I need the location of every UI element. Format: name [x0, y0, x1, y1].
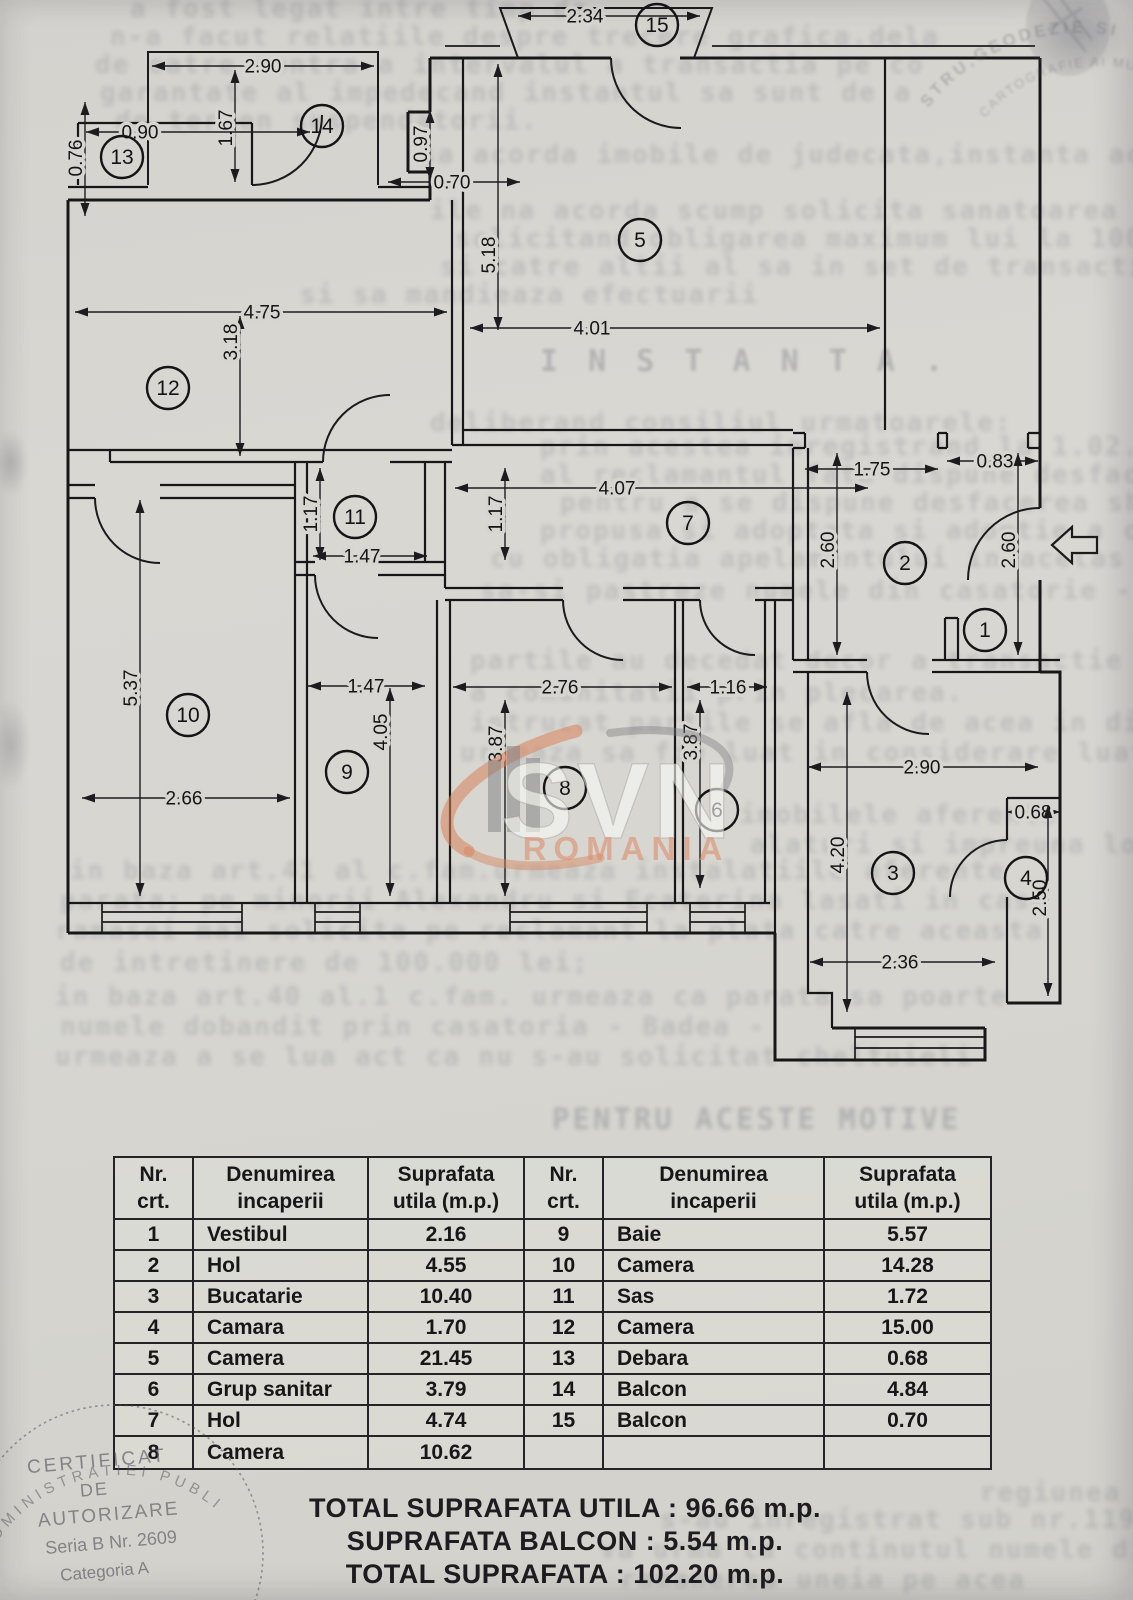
- table-cell-area: 4.55: [369, 1251, 525, 1282]
- table-header-area: Suprafata utila (m.p.): [825, 1158, 990, 1220]
- bleedthrough-text: n-a facut relatiile despre trecere grafi…: [110, 22, 940, 52]
- bleedthrough-text: partile au decedat decor a transactie in…: [470, 646, 1133, 676]
- bleedthrough-text: a comunitatii prin plecarea.: [470, 678, 964, 708]
- bleedthrough-text: parata; pe minorii Alexandru si Ecaterin…: [60, 886, 1049, 916]
- bleedthrough-text: I N S T A N T A .: [540, 344, 949, 379]
- table-header-nr: Nr. crt.: [525, 1158, 604, 1220]
- bleedthrough-text: si catre altii al sa in set de transacti…: [440, 252, 1133, 282]
- table-cell-room: Camera: [604, 1313, 825, 1344]
- bleedthrough-text: ile na acorda scump solicita sanatoarea …: [430, 196, 1133, 226]
- table-cell-room: Camera: [604, 1251, 825, 1282]
- table-cell-nr: 2: [115, 1251, 194, 1282]
- table-cell-room: Camera: [194, 1344, 369, 1375]
- bleedthrough-text: sa acorda imobile de judecata,instanta a…: [420, 140, 1133, 170]
- table-cell-area: 4.74: [369, 1406, 525, 1437]
- table-cell-nr: 13: [525, 1344, 604, 1375]
- total-suprafata: TOTAL SUPRAFATA : 102.20 m.p.: [115, 1558, 1015, 1591]
- bleedthrough-text: in baza art.40 al.1 c.fam. urmeaza ca pa…: [55, 982, 1008, 1012]
- bleedthrough-text: cu obligatia apelamentului in acelas - i…: [490, 544, 1133, 574]
- bleedthrough-text: numele dobandit prin casatoria - Badea -: [60, 1012, 766, 1042]
- bleedthrough-text: PENTRU ACESTE MOTIVE: [552, 1102, 961, 1136]
- bleedthrough-text: in baza art.41 al c.fam.urmeaza instalat…: [70, 856, 1006, 886]
- table-cell-area: 10.40: [369, 1282, 525, 1313]
- bleedthrough-text: urmeaza a se lua act ca nu s-au solicita…: [55, 1042, 973, 1072]
- table-cell-area: 4.84: [825, 1375, 990, 1406]
- table-cell-room: Debara: [604, 1344, 825, 1375]
- bleedthrough-text: sa-si pastreze numele din casatorie - Ba…: [480, 576, 1133, 606]
- total-balcon: SUPRAFATA BALCON : 5.54 m.p.: [115, 1525, 1015, 1558]
- table-cell-nr: 12: [525, 1313, 604, 1344]
- table-cell-nr: 11: [525, 1282, 604, 1313]
- table-cell-area: 2.16: [369, 1220, 525, 1251]
- bleedthrough-text: imobilele aferente: [740, 800, 1058, 830]
- table-cell-nr: 15: [525, 1406, 604, 1437]
- table-header-room: Denumirea incaperii: [194, 1158, 369, 1220]
- bleedthrough-text: al reclamantul fata dispune desfacerea c…: [540, 460, 1133, 490]
- bleedthrough-text: de termen suspendatorii.: [115, 106, 539, 136]
- table-cell-area: 5.57: [825, 1220, 990, 1251]
- table-cell-area: 14.28: [825, 1251, 990, 1282]
- bleedthrough-text: prin acestea inregistrand la 1.02.1996,l…: [540, 432, 1133, 462]
- table-cell-area: 1.72: [825, 1282, 990, 1313]
- bleedthrough-text: ramasei mai solicita pe reclamant la pla…: [55, 916, 1044, 946]
- table-cell-nr: 7: [115, 1406, 194, 1437]
- bleedthrough-text: si sa mandieaza efectuarii: [300, 280, 759, 310]
- table-cell-area: 15.00: [825, 1313, 990, 1344]
- table-cell-room: Bucatarie: [194, 1282, 369, 1313]
- table-cell-area: 10.62: [369, 1437, 525, 1468]
- table-cell-nr: 8: [115, 1437, 194, 1468]
- table-cell-nr: 6: [115, 1375, 194, 1406]
- table-cell-room: Hol: [194, 1406, 369, 1437]
- total-utila: TOTAL SUPRAFATA UTILA : 96.66 m.p.: [115, 1492, 1015, 1525]
- bleedthrough-text: solicitand obligarea maximum lui la 100.…: [455, 224, 1133, 254]
- table-cell-room: Balcon: [604, 1406, 825, 1437]
- table-cell-area: [825, 1437, 990, 1468]
- table-cell-room: Camara: [194, 1313, 369, 1344]
- table-cell-nr: 4: [115, 1313, 194, 1344]
- table-cell-room: Sas: [604, 1282, 825, 1313]
- table-cell-area: 0.70: [825, 1406, 990, 1437]
- table-cell-nr: 10: [525, 1251, 604, 1282]
- table-header-nr: Nr. crt.: [115, 1158, 194, 1220]
- table-cell-room: Balcon: [604, 1375, 825, 1406]
- table-cell-room: [604, 1437, 825, 1468]
- bleedthrough-text: urmeaza sa fie luat in considerare luate: [460, 738, 1133, 768]
- table-cell-room: Vestibul: [194, 1220, 369, 1251]
- totals-block: TOTAL SUPRAFATA UTILA : 96.66 m.p. SUPRA…: [115, 1492, 1015, 1591]
- table-cell-nr: 1: [115, 1220, 194, 1251]
- bleedthrough-text: de intretinere de 100.000 lei;: [60, 948, 590, 978]
- table-cell-room: Grup sanitar: [194, 1375, 369, 1406]
- table-cell-room: Hol: [194, 1251, 369, 1282]
- table-cell-room: Baie: [604, 1220, 825, 1251]
- bleedthrough-text: de catre contra a intervalul a transacti…: [95, 50, 925, 80]
- bleedthrough-text: a fost legat intre timp de: [130, 0, 589, 24]
- table-header-area: Suprafata utila (m.p.): [369, 1158, 525, 1220]
- bleedthrough-text: pentru a se dispune desfacerea shab: [560, 488, 1133, 518]
- bleedthrough-text: intrucat partile se afla de acea in dive…: [470, 708, 1133, 738]
- table-header-room: Denumirea incaperii: [604, 1158, 825, 1220]
- table-cell-nr: 14: [525, 1375, 604, 1406]
- table-cell-area: 1.70: [369, 1313, 525, 1344]
- scanned-floor-plan-page: { "floor_plan": { "room_circles": [ {"n"…: [0, 0, 1133, 1600]
- bleedthrough-text: propusa si adoptata si adoptie a copiilo…: [540, 516, 1133, 546]
- table-cell-room: Camera: [194, 1437, 369, 1468]
- area-table: Nr. crt. Denumirea incaperii Suprafata u…: [113, 1156, 992, 1470]
- table-cell-area: 3.79: [369, 1375, 525, 1406]
- table-cell-nr: 5: [115, 1344, 194, 1375]
- table-cell-nr: [525, 1437, 604, 1468]
- table-cell-area: 0.68: [825, 1344, 990, 1375]
- table-cell-nr: 3: [115, 1282, 194, 1313]
- bleedthrough-text: garantate al impedecand instantul sa sun…: [100, 78, 912, 108]
- table-cell-area: 21.45: [369, 1344, 525, 1375]
- table-cell-nr: 9: [525, 1220, 604, 1251]
